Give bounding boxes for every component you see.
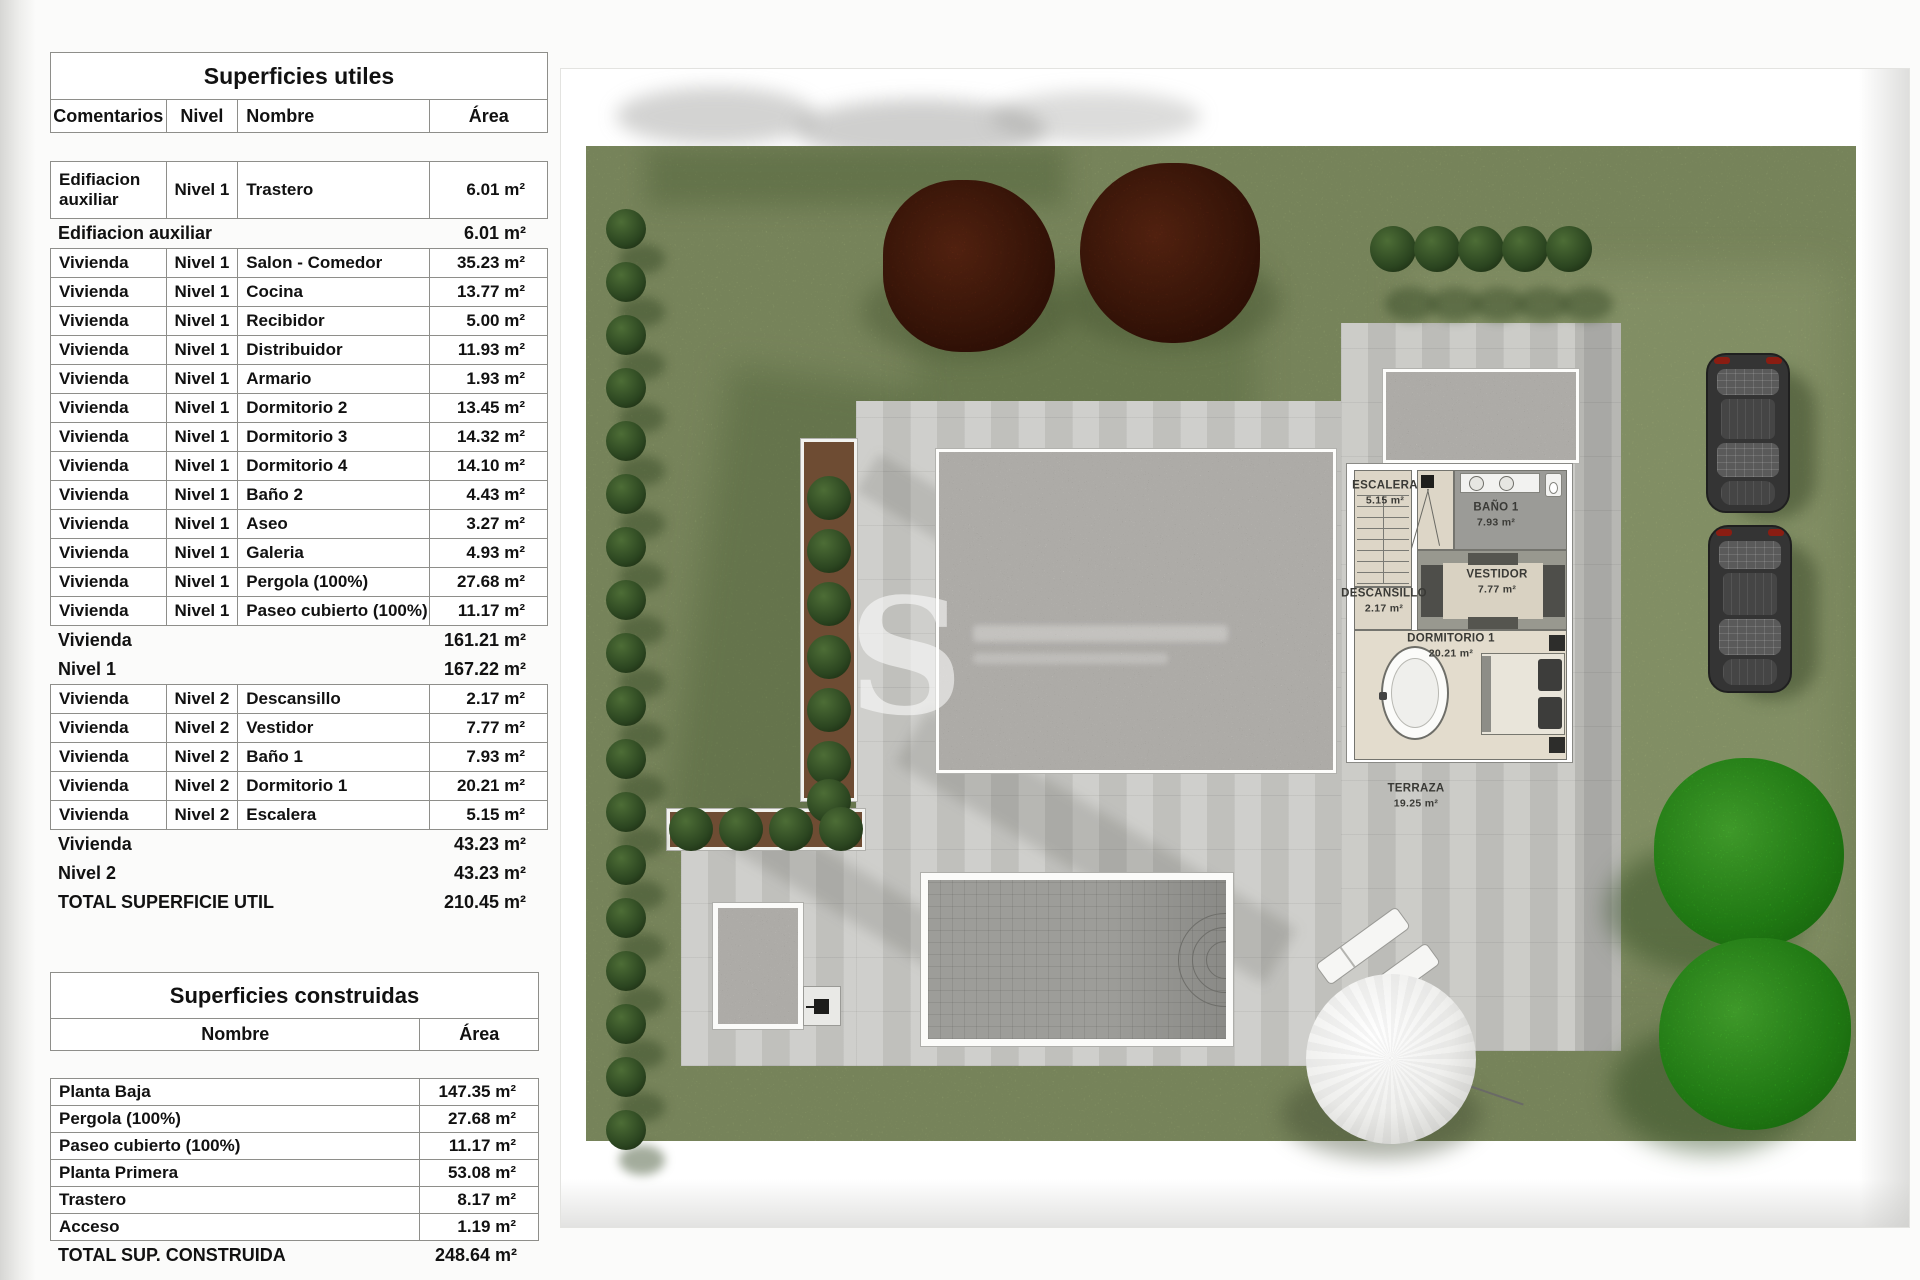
bush bbox=[606, 1057, 646, 1097]
superficies-construidas-body: Planta Baja147.35 m²Pergola (100%)27.68 … bbox=[50, 1078, 539, 1270]
cell-nombre: Distribuidor bbox=[237, 336, 429, 364]
header-area: Área bbox=[429, 100, 547, 132]
pool-steps-arc bbox=[1178, 913, 1233, 1007]
page-bottom-shading bbox=[561, 1179, 1909, 1227]
summary-area: 43.23 m² bbox=[430, 863, 548, 884]
green-tree bbox=[1654, 758, 1844, 948]
cell-nivel: Nivel 2 bbox=[166, 801, 238, 829]
access-door bbox=[814, 999, 829, 1014]
table-row: ViviendaNivel 1Dormitorio 213.45 m² bbox=[51, 393, 547, 422]
room-name: VESTIDOR bbox=[1466, 567, 1527, 583]
bush bbox=[1414, 226, 1460, 272]
closet-box bbox=[1421, 475, 1434, 488]
cell-nombre: Paseo cubierto (100%) bbox=[51, 1133, 419, 1159]
cell-area: 14.10 m² bbox=[429, 452, 547, 480]
table-group: ViviendaNivel 1Salon - Comedor35.23 m²Vi… bbox=[50, 248, 548, 626]
superficies-construidas-title: Superficies construidas bbox=[50, 972, 539, 1019]
cell-nivel: Nivel 1 bbox=[166, 597, 238, 625]
bed-icon bbox=[1481, 653, 1565, 735]
bush bbox=[606, 262, 646, 302]
room-closet bbox=[1417, 470, 1454, 550]
cell-area: 1.93 m² bbox=[429, 365, 547, 393]
cell-area: 20.21 m² bbox=[429, 772, 547, 800]
table-row: Edifiacion auxiliarNivel 1Trastero6.01 m… bbox=[51, 162, 547, 218]
cell-area: 13.77 m² bbox=[429, 278, 547, 306]
page-left-shading bbox=[0, 0, 36, 1280]
watermark-text-blur bbox=[973, 653, 1168, 664]
cell-nombre: Escalera bbox=[237, 801, 429, 829]
summary-label: Edifiacion auxiliar bbox=[50, 223, 430, 244]
cell-comentarios: Vivienda bbox=[51, 510, 166, 538]
cell-comentarios: Edifiacion auxiliar bbox=[51, 162, 166, 218]
cell-area: 1.19 m² bbox=[419, 1214, 538, 1240]
page-right-shading bbox=[1859, 69, 1909, 1227]
cell-nombre: Baño 1 bbox=[237, 743, 429, 771]
car-windshield bbox=[1719, 619, 1781, 655]
table-group: Planta Baja147.35 m²Pergola (100%)27.68 … bbox=[50, 1078, 539, 1241]
room-label-baño-1: BAÑO 17.93 m² bbox=[1473, 500, 1518, 531]
car-rear-window bbox=[1719, 541, 1781, 569]
taillight-icon bbox=[1716, 529, 1732, 536]
cell-nombre: Dormitorio 2 bbox=[237, 394, 429, 422]
bush bbox=[1370, 226, 1416, 272]
cell-area: 7.93 m² bbox=[429, 743, 547, 771]
cell-nombre: Descansillo bbox=[237, 685, 429, 713]
bed-pillow bbox=[1538, 697, 1562, 729]
bush bbox=[606, 474, 646, 514]
car-hood bbox=[1721, 481, 1775, 505]
cell-nivel: Nivel 1 bbox=[166, 249, 238, 277]
cell-area: 3.27 m² bbox=[429, 510, 547, 538]
cell-nivel: Nivel 1 bbox=[166, 510, 238, 538]
page-shadow-blob bbox=[616, 87, 816, 145]
cell-comentarios: Vivienda bbox=[51, 801, 166, 829]
superficies-utiles-body: Edifiacion auxiliarNivel 1Trastero6.01 m… bbox=[50, 161, 548, 917]
trastero-access bbox=[803, 986, 841, 1026]
table-row: ViviendaNivel 2Baño 17.93 m² bbox=[51, 742, 547, 771]
cell-area: 14.32 m² bbox=[429, 423, 547, 451]
summary-label: TOTAL SUPERFICIE UTIL bbox=[50, 892, 430, 913]
cell-nivel: Nivel 1 bbox=[166, 481, 238, 509]
watermark-text-blur bbox=[973, 625, 1228, 642]
taillight-icon bbox=[1766, 357, 1782, 364]
bush bbox=[1502, 226, 1548, 272]
terrace-shade-strip bbox=[1575, 323, 1621, 1051]
table-summary-row: Vivienda43.23 m² bbox=[50, 830, 548, 859]
red-tree bbox=[1080, 163, 1260, 343]
cell-area: 27.68 m² bbox=[429, 568, 547, 596]
cell-comentarios: Vivienda bbox=[51, 772, 166, 800]
cell-nombre: Dormitorio 4 bbox=[237, 452, 429, 480]
cell-comentarios: Vivienda bbox=[51, 539, 166, 567]
bush bbox=[807, 635, 851, 679]
nightstand-icon bbox=[1549, 635, 1565, 651]
cell-comentarios: Vivienda bbox=[51, 568, 166, 596]
bush bbox=[606, 951, 646, 991]
cell-area: 5.00 m² bbox=[429, 307, 547, 335]
cell-comentarios: Vivienda bbox=[51, 249, 166, 277]
table-row: ViviendaNivel 1Salon - Comedor35.23 m² bbox=[51, 249, 547, 277]
cell-nivel: Nivel 2 bbox=[166, 772, 238, 800]
cell-comentarios: Vivienda bbox=[51, 336, 166, 364]
superficies-utiles-header-row: Comentarios Nivel Nombre Área bbox=[50, 100, 548, 133]
cell-comentarios: Vivienda bbox=[51, 452, 166, 480]
cell-nombre: Recibidor bbox=[237, 307, 429, 335]
wardrobe-block bbox=[1543, 565, 1565, 617]
cell-nombre: Armario bbox=[237, 365, 429, 393]
cell-area: 5.15 m² bbox=[429, 801, 547, 829]
closet-line bbox=[1427, 489, 1440, 546]
summary-area: 43.23 m² bbox=[430, 834, 548, 855]
cell-area: 11.17 m² bbox=[429, 597, 547, 625]
page-shadow-blob bbox=[991, 91, 1201, 143]
header-comentarios: Comentarios bbox=[51, 100, 166, 132]
cell-comentarios: Vivienda bbox=[51, 423, 166, 451]
pergola-gravel-roof bbox=[936, 449, 1336, 773]
cell-nombre: Pergola (100%) bbox=[237, 568, 429, 596]
table-summary-row: Nivel 1167.22 m² bbox=[50, 655, 548, 684]
cell-nivel: Nivel 1 bbox=[166, 307, 238, 335]
bed-pillow bbox=[1538, 659, 1562, 691]
cell-nivel: Nivel 1 bbox=[166, 162, 238, 218]
table-summary-row: Nivel 243.23 m² bbox=[50, 859, 548, 888]
bush bbox=[606, 209, 646, 249]
superficies-construidas-header-row: Nombre Área bbox=[50, 1019, 539, 1051]
bed-footboard bbox=[1482, 656, 1491, 732]
cell-comentarios: Vivienda bbox=[51, 481, 166, 509]
cell-nivel: Nivel 2 bbox=[166, 743, 238, 771]
table-summary-row: Edifiacion auxiliar6.01 m² bbox=[50, 219, 548, 248]
cell-comentarios: Vivienda bbox=[51, 685, 166, 713]
superficies-utiles-table: Superficies utiles Comentarios Nivel Nom… bbox=[50, 52, 548, 917]
table-row: ViviendaNivel 1Recibidor5.00 m² bbox=[51, 306, 547, 335]
site-plan: ESCALERA5.15 m²BAÑO 17.93 m²DESCANSILLO2… bbox=[560, 68, 1910, 1228]
cell-nivel: Nivel 1 bbox=[166, 423, 238, 451]
table-row: Pergola (100%)27.68 m² bbox=[51, 1105, 538, 1132]
cell-area: 7.77 m² bbox=[429, 714, 547, 742]
table-row: ViviendaNivel 1Pergola (100%)27.68 m² bbox=[51, 567, 547, 596]
table-row: ViviendaNivel 1Paseo cubierto (100%)11.1… bbox=[51, 596, 547, 625]
taillight-icon bbox=[1768, 529, 1784, 536]
table-row: ViviendaNivel 1Aseo3.27 m² bbox=[51, 509, 547, 538]
table-row: ViviendaNivel 1Baño 24.43 m² bbox=[51, 480, 547, 509]
watermark-letter: S bbox=[848, 577, 964, 737]
table-row: Trastero8.17 m² bbox=[51, 1186, 538, 1213]
cell-area: 4.43 m² bbox=[429, 481, 547, 509]
room-label-dormitorio-1: DORMITORIO 120.21 m² bbox=[1407, 631, 1495, 662]
room-label-terraza: TERRAZA19.25 m² bbox=[1387, 781, 1444, 812]
cell-nombre: Aseo bbox=[237, 510, 429, 538]
bush bbox=[606, 792, 646, 832]
table-group: ViviendaNivel 2Descansillo2.17 m²Viviend… bbox=[50, 684, 548, 830]
bush bbox=[606, 845, 646, 885]
header-area: Área bbox=[419, 1019, 538, 1050]
cell-comentarios: Vivienda bbox=[51, 307, 166, 335]
pool bbox=[921, 873, 1233, 1046]
room-name: TERRAZA bbox=[1387, 781, 1444, 797]
bush bbox=[606, 633, 646, 673]
cell-nombre: Baño 2 bbox=[237, 481, 429, 509]
table-row: ViviendaNivel 1Armario1.93 m² bbox=[51, 364, 547, 393]
room-area: 19.25 m² bbox=[1387, 797, 1444, 812]
cell-nivel: Nivel 1 bbox=[166, 336, 238, 364]
room-name: DESCANSILLO bbox=[1341, 586, 1427, 602]
cell-nombre: Paseo cubierto (100%) bbox=[237, 597, 429, 625]
summary-label: Nivel 2 bbox=[50, 863, 430, 884]
table-summary-row: Vivienda161.21 m² bbox=[50, 626, 548, 655]
room-label-descansillo: DESCANSILLO2.17 m² bbox=[1341, 586, 1427, 617]
sink-icon bbox=[1469, 476, 1484, 491]
table-row: ViviendaNivel 1Cocina13.77 m² bbox=[51, 277, 547, 306]
summary-area: 167.22 m² bbox=[430, 659, 548, 680]
cell-nivel: Nivel 1 bbox=[166, 568, 238, 596]
cell-nombre: Cocina bbox=[237, 278, 429, 306]
summary-label: Vivienda bbox=[50, 630, 430, 651]
room-area: 5.15 m² bbox=[1352, 494, 1418, 509]
table-row: ViviendaNivel 2Vestidor7.77 m² bbox=[51, 713, 547, 742]
cell-nombre: Trastero bbox=[51, 1187, 419, 1213]
wardrobe-block bbox=[1468, 617, 1518, 629]
bush bbox=[606, 1110, 646, 1150]
bush bbox=[807, 476, 851, 520]
bush bbox=[819, 807, 863, 851]
cell-comentarios: Vivienda bbox=[51, 365, 166, 393]
page: { "superficies_utiles": { "title": "Supe… bbox=[0, 0, 1920, 1280]
cell-area: 11.93 m² bbox=[429, 336, 547, 364]
cell-area: 4.93 m² bbox=[429, 539, 547, 567]
cell-area: 6.01 m² bbox=[429, 162, 547, 218]
room-name: BAÑO 1 bbox=[1473, 500, 1518, 516]
room-label-vestidor: VESTIDOR7.77 m² bbox=[1466, 567, 1527, 598]
cell-nombre: Planta Baja bbox=[51, 1079, 419, 1105]
cell-area: 2.17 m² bbox=[429, 685, 547, 713]
table-row: ViviendaNivel 1Galeria4.93 m² bbox=[51, 538, 547, 567]
table-row: ViviendaNivel 2Dormitorio 120.21 m² bbox=[51, 771, 547, 800]
table-row: ViviendaNivel 1Dormitorio 314.32 m² bbox=[51, 422, 547, 451]
bush bbox=[606, 739, 646, 779]
cell-comentarios: Vivienda bbox=[51, 714, 166, 742]
table-row: Acceso1.19 m² bbox=[51, 1213, 538, 1240]
room-name: DORMITORIO 1 bbox=[1407, 631, 1495, 647]
cell-nivel: Nivel 1 bbox=[166, 452, 238, 480]
bush bbox=[606, 898, 646, 938]
summary-label: Vivienda bbox=[50, 834, 430, 855]
superficies-utiles-title: Superficies utiles bbox=[50, 52, 548, 100]
table-group: Edifiacion auxiliarNivel 1Trastero6.01 m… bbox=[50, 161, 548, 219]
summary-area: 210.45 m² bbox=[430, 892, 548, 913]
summary-area: 161.21 m² bbox=[430, 630, 548, 651]
cell-comentarios: Vivienda bbox=[51, 394, 166, 422]
header-nivel: Nivel bbox=[166, 100, 238, 132]
car-roof bbox=[1721, 399, 1775, 439]
bush bbox=[606, 527, 646, 567]
access-door-stem bbox=[806, 1006, 815, 1008]
cell-nombre: Acceso bbox=[51, 1214, 419, 1240]
table-total-row: TOTAL SUP. CONSTRUIDA248.64 m² bbox=[50, 1241, 539, 1270]
bush bbox=[606, 1004, 646, 1044]
car bbox=[1708, 525, 1792, 693]
cell-nivel: Nivel 1 bbox=[166, 539, 238, 567]
table-row: ViviendaNivel 1Distribuidor11.93 m² bbox=[51, 335, 547, 364]
cell-area: 147.35 m² bbox=[419, 1079, 538, 1105]
cell-area: 27.68 m² bbox=[419, 1106, 538, 1132]
bush bbox=[606, 686, 646, 726]
cell-nombre: Trastero bbox=[237, 162, 429, 218]
car bbox=[1706, 353, 1790, 513]
room-area: 7.77 m² bbox=[1466, 583, 1527, 598]
bush bbox=[807, 582, 851, 626]
cell-area: 53.08 m² bbox=[419, 1160, 538, 1186]
cell-nombre: Salon - Comedor bbox=[237, 249, 429, 277]
room-area: 7.93 m² bbox=[1473, 516, 1518, 531]
car-roof bbox=[1723, 573, 1777, 615]
room-area: 2.17 m² bbox=[1341, 602, 1427, 617]
nightstand-icon bbox=[1549, 737, 1565, 753]
cell-comentarios: Vivienda bbox=[51, 743, 166, 771]
table-row: ViviendaNivel 1Dormitorio 414.10 m² bbox=[51, 451, 547, 480]
summary-area: 6.01 m² bbox=[430, 223, 548, 244]
bush bbox=[1546, 226, 1592, 272]
bathtub-inner bbox=[1391, 658, 1439, 728]
bush bbox=[1458, 226, 1504, 272]
bush bbox=[807, 529, 851, 573]
wardrobe-block bbox=[1468, 553, 1518, 565]
cell-area: 8.17 m² bbox=[419, 1187, 538, 1213]
bush bbox=[606, 421, 646, 461]
cell-nivel: Nivel 1 bbox=[166, 365, 238, 393]
table-row: Paseo cubierto (100%)11.17 m² bbox=[51, 1132, 538, 1159]
summary-label: TOTAL SUP. CONSTRUIDA bbox=[50, 1245, 420, 1266]
table-row: Planta Baja147.35 m² bbox=[51, 1079, 538, 1105]
cell-nivel: Nivel 1 bbox=[166, 278, 238, 306]
bush bbox=[606, 580, 646, 620]
summary-area: 248.64 m² bbox=[420, 1245, 539, 1266]
room-label-escalera: ESCALERA5.15 m² bbox=[1352, 478, 1418, 509]
cell-nombre: Dormitorio 1 bbox=[237, 772, 429, 800]
room-area: 20.21 m² bbox=[1407, 647, 1495, 662]
cell-nombre: Dormitorio 3 bbox=[237, 423, 429, 451]
taillight-icon bbox=[1714, 357, 1730, 364]
cell-nivel: Nivel 2 bbox=[166, 685, 238, 713]
trastero-building bbox=[713, 903, 803, 1029]
bush bbox=[769, 807, 813, 851]
bush bbox=[719, 807, 763, 851]
sink-icon bbox=[1499, 476, 1514, 491]
cell-area: 13.45 m² bbox=[429, 394, 547, 422]
cell-area: 35.23 m² bbox=[429, 249, 547, 277]
car-rear-window bbox=[1717, 369, 1779, 395]
room-name: ESCALERA bbox=[1352, 478, 1418, 494]
bush bbox=[606, 368, 646, 408]
bush bbox=[807, 688, 851, 732]
car-windshield bbox=[1717, 443, 1779, 477]
cell-area: 11.17 m² bbox=[419, 1133, 538, 1159]
cell-nombre: Pergola (100%) bbox=[51, 1106, 419, 1132]
cell-comentarios: Vivienda bbox=[51, 278, 166, 306]
cell-nivel: Nivel 2 bbox=[166, 714, 238, 742]
white-sphere bbox=[1306, 974, 1476, 1144]
bush bbox=[606, 315, 646, 355]
table-total-row: TOTAL SUPERFICIE UTIL210.45 m² bbox=[50, 888, 548, 917]
toilet-bowl bbox=[1549, 482, 1558, 494]
faucet-icon bbox=[1379, 692, 1387, 700]
chair-backrest-line bbox=[1340, 947, 1356, 968]
red-tree bbox=[883, 180, 1055, 352]
table-row: Planta Primera53.08 m² bbox=[51, 1159, 538, 1186]
table-row: ViviendaNivel 2Descansillo2.17 m² bbox=[51, 685, 547, 713]
superficies-construidas-table: Superficies construidas Nombre Área Plan… bbox=[50, 972, 539, 1270]
cell-nombre: Galeria bbox=[237, 539, 429, 567]
header-nombre: Nombre bbox=[51, 1019, 419, 1050]
upper-gravel-roof bbox=[1383, 369, 1579, 463]
cell-nivel: Nivel 1 bbox=[166, 394, 238, 422]
header-nombre: Nombre bbox=[237, 100, 429, 132]
table-row: ViviendaNivel 2Escalera5.15 m² bbox=[51, 800, 547, 829]
summary-label: Nivel 1 bbox=[50, 659, 430, 680]
toilet-icon bbox=[1545, 473, 1562, 497]
cell-nombre: Vestidor bbox=[237, 714, 429, 742]
car-hood bbox=[1723, 659, 1777, 685]
cell-nombre: Planta Primera bbox=[51, 1160, 419, 1186]
cell-comentarios: Vivienda bbox=[51, 597, 166, 625]
bush bbox=[669, 807, 713, 851]
